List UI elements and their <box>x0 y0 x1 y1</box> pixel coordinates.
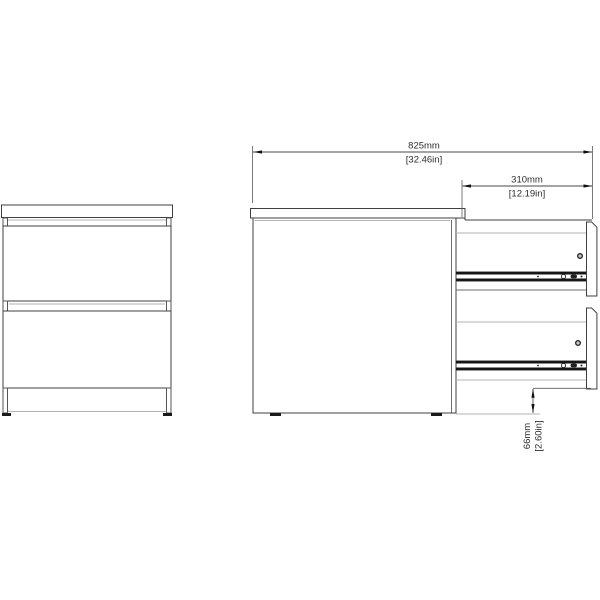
front-right-leg <box>167 388 172 413</box>
arrowhead-down-icon <box>531 404 534 413</box>
dimension-label-total-mm: 825mm <box>408 141 440 152</box>
side-drawer1-front-edge <box>587 222 597 296</box>
front-drawer1-front <box>3 226 171 301</box>
front-left-leg <box>3 388 8 413</box>
side-drawer1 <box>456 222 597 296</box>
front-gap2-left-edge <box>3 301 8 311</box>
clearance-label-group: 66mm [2.60in] <box>522 420 545 451</box>
dimension-label-clearance-in: [2.60in] <box>534 420 545 451</box>
rail-latch-icon <box>571 275 578 279</box>
arrowhead-up-icon <box>531 389 534 398</box>
arrowhead-left-icon <box>462 184 471 187</box>
rail-roller-icon <box>561 274 565 278</box>
dimension-label-total-in: [32.46in] <box>406 155 442 166</box>
front-gap1-right-edge <box>167 218 172 226</box>
rail-latch-icon <box>571 364 578 368</box>
arrowhead-left-icon <box>253 150 262 153</box>
front-view <box>2 205 173 416</box>
dimension-label-depth-mm: 310mm <box>511 175 543 186</box>
side-drawer2-front-edge <box>587 308 597 389</box>
front-gap1-left-edge <box>3 218 8 226</box>
rail-rivet-icon <box>581 276 583 278</box>
front-top-panel <box>2 205 173 218</box>
front-left-foot <box>2 413 11 416</box>
side-view <box>251 209 597 417</box>
side-left-foot <box>270 413 281 416</box>
rail-rivet-icon <box>537 365 539 367</box>
side-right-foot <box>431 413 442 416</box>
front-right-foot <box>163 413 172 416</box>
dimension-diagram-canvas: 825mm [32.46in] 310mm [12.19in] 66mm [2.… <box>0 0 600 600</box>
rail-rivet-icon <box>581 365 583 367</box>
rail-roller-icon <box>561 363 565 367</box>
side-drawer2 <box>456 308 597 389</box>
dimension-base-clearance: 66mm [2.60in] <box>522 388 591 451</box>
rail-rivet-icon <box>537 276 539 278</box>
dimension-drawer-depth: 310mm [12.19in] <box>462 175 593 218</box>
dimension-label-clearance-mm: 66mm <box>522 423 533 449</box>
front-gap2-right-edge <box>167 301 172 311</box>
arrowhead-right-icon <box>584 184 593 187</box>
side-top-panel <box>251 209 466 219</box>
arrowhead-right-icon <box>584 150 593 153</box>
side-cabinet-body <box>253 218 456 413</box>
dimension-label-depth-in: [12.19in] <box>509 189 545 200</box>
technical-drawing-svg: 825mm [32.46in] 310mm [12.19in] 66mm [2.… <box>0 0 600 600</box>
front-drawer2-front <box>3 311 171 388</box>
